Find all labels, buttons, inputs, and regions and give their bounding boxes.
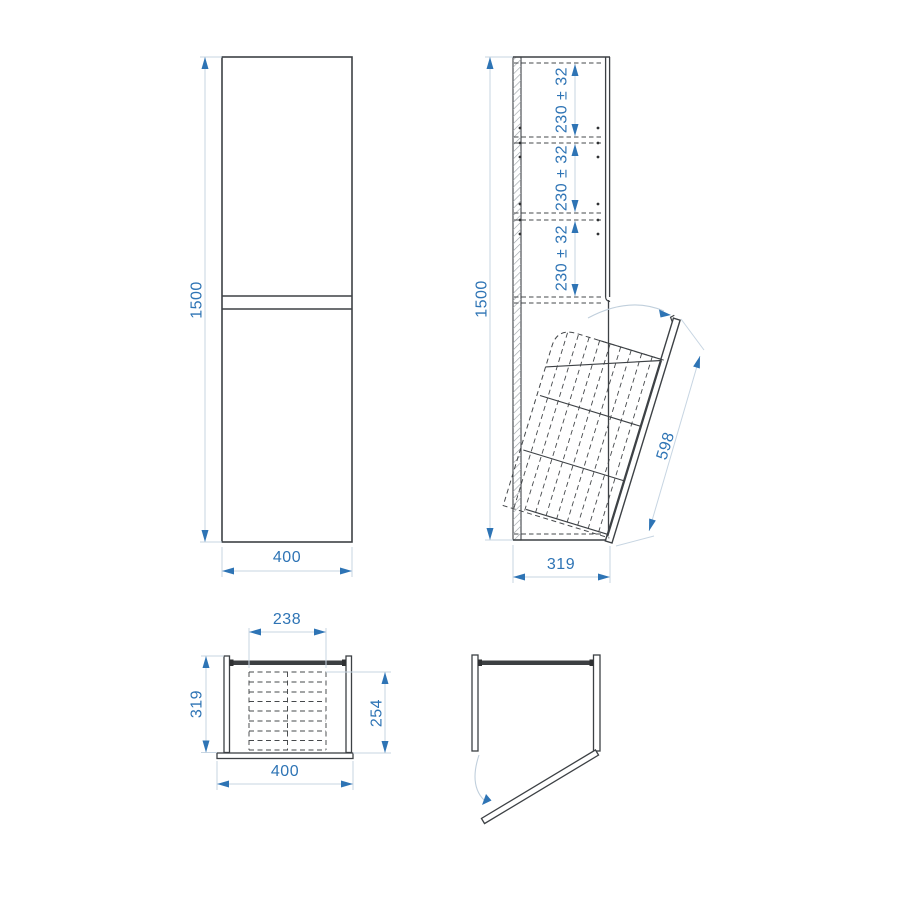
dim-label-shelf-spacing-3: 230 ± 32: [554, 225, 571, 291]
arrowhead-up-icon: [202, 57, 209, 69]
plan-door-open: [481, 750, 598, 824]
cabinet-drawing: 1500 400: [0, 0, 900, 900]
basket-depth-dimension: 254: [326, 672, 391, 753]
dim-label-front-height: 1500: [189, 281, 206, 319]
front-width-dimension: 400: [222, 547, 352, 577]
dim-label-side-height: 1500: [474, 280, 491, 318]
front-view: 1500 400: [189, 57, 353, 577]
side-depth-dimension: 319: [513, 545, 610, 583]
front-cabinet-outline: [222, 57, 352, 542]
plan-left-wall: [224, 656, 230, 753]
dim-label-plan-depth: 319: [189, 690, 206, 718]
dim-label-side-depth: 319: [547, 556, 575, 573]
plan-depth-dimension: 319: [189, 656, 225, 753]
plan-open-back-panel: [478, 661, 594, 666]
arrowhead-down-icon: [202, 530, 209, 542]
plan-door-closed: [217, 753, 353, 759]
front-height-dimension: 1500: [189, 57, 223, 542]
plan-view-open: [472, 655, 600, 824]
shelf-spacing-dimensions: 230 ± 32 230 ± 32 230 ± 32: [554, 64, 579, 296]
dim-label-shelf-spacing-2: 230 ± 32: [554, 145, 571, 211]
plan-back-panel: [230, 661, 347, 666]
side-view: 230 ± 32 230 ± 32 230 ± 32 1500: [474, 57, 705, 583]
plan-width-dimension: 400: [217, 761, 353, 790]
plan-right-wall: [346, 656, 352, 753]
wire-basket: [503, 328, 664, 538]
basket-width-dimension: 238: [249, 611, 326, 668]
tilt-door-open: [602, 314, 681, 543]
wire-basket-top: [249, 672, 326, 750]
plan-view-closed: 238 319 254 400: [189, 611, 392, 790]
technical-drawing-canvas: 1500 400: [0, 0, 900, 900]
dim-label-front-width: 400: [273, 549, 301, 566]
door-swing-arc-plan: [475, 755, 492, 805]
arrowhead-left-icon: [222, 568, 234, 575]
side-height-dimension: 1500: [474, 57, 514, 540]
plan-open-left-wall: [472, 655, 478, 751]
dim-label-door-length: 598: [654, 430, 679, 462]
arrowhead-swing-icon: [659, 310, 671, 318]
plan-open-right-wall: [594, 655, 601, 751]
dim-label-basket-width: 238: [273, 611, 301, 628]
door-swing-arc-side: [588, 305, 671, 318]
arrowhead-right-icon: [340, 568, 352, 575]
door-bottom-hook: [606, 297, 611, 302]
side-upper-door-closed: [606, 57, 611, 302]
dim-label-plan-width: 400: [271, 763, 299, 780]
dim-label-shelf-spacing-1: 230 ± 32: [554, 67, 571, 133]
dim-label-basket-depth: 254: [369, 699, 386, 727]
